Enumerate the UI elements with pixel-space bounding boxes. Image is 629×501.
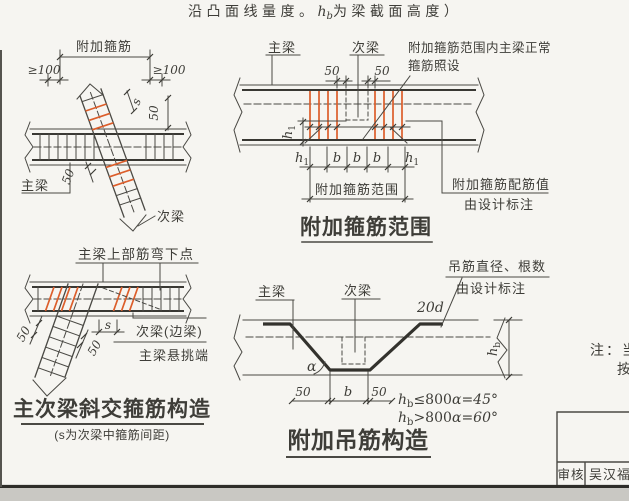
main-beam-linework: [234, 78, 484, 152]
secondary-beam-label: 次梁: [352, 40, 380, 55]
main-beam-label: 主梁: [258, 284, 286, 299]
dim-b-1: b: [333, 151, 341, 166]
leader-lines: [22, 163, 155, 226]
footer-strip: [0, 488, 629, 501]
hanger-note-line2: 由设计标注: [456, 281, 526, 296]
scanned-drawing-page: 沿凸面线量度。hb为梁截面高度） 附加箍筋 ≥100 ≥10: [0, 0, 629, 501]
main-beam-label: 主梁: [21, 178, 49, 193]
dim-h1-side: h1: [281, 125, 298, 139]
scan-edge-artifact: [0, 50, 2, 487]
side-note: 注：当 按: [590, 342, 629, 377]
review-label: 审核: [557, 467, 584, 482]
dim-s: s: [129, 96, 144, 107]
secondary-beam-linework: [77, 84, 146, 231]
side-note-line1: 注：当: [590, 342, 629, 358]
hanger-note-line1: 吊筋直径、根数: [448, 259, 546, 274]
dim-h1-bottom-right: h1: [405, 151, 419, 168]
dim-50-right: 50: [374, 64, 390, 78]
bent-bar-hidden: [103, 288, 162, 310]
secondary-beam-hidden-outline: [342, 337, 365, 364]
leader-lines: [266, 55, 548, 193]
additional-stirrup-label: 附加箍筋: [76, 39, 132, 54]
angle-rule-1: hb≤800α=45°: [398, 392, 498, 410]
diagram-stirrup-range: 主梁 次梁 附加箍筋范围内主梁正常 箍筋照设 50 50 h1 h1 b b b…: [234, 40, 551, 242]
dim-h1-bottom-left: h1: [295, 151, 309, 168]
dim-ge100-right: ≥100: [153, 63, 186, 77]
header-note: 沿凸面线量度。hb为梁截面高度）: [188, 3, 462, 22]
dim-b-2: b: [353, 151, 361, 166]
dim-50-side: 50: [147, 105, 161, 121]
angle-rule-2: hb>800α=60°: [398, 410, 498, 428]
review-value: 吴汉福: [589, 467, 629, 482]
diagram-title: 主次梁斜交箍筋构造: [13, 397, 211, 421]
break-symbols: [77, 84, 146, 231]
note-normal-stirrups-line2: 箍筋照设: [408, 58, 460, 73]
break-symbol: [33, 378, 66, 396]
main-beam-linework: [25, 275, 191, 323]
diagram-additional-stirrups: 附加箍筋 ≥100 ≥100 s 50 50 主梁 次梁: [21, 39, 191, 231]
title-block: 审核 吴汉福: [557, 412, 629, 486]
cantilever-label: 主梁悬挑端: [139, 348, 209, 363]
dim-20d: 20d: [416, 300, 444, 316]
diagram-subtitle: (s为次梁中箍筋间距): [54, 427, 170, 442]
bend-point-label: 主梁上部筋弯下点: [78, 246, 194, 262]
dim-50-a: 50: [14, 324, 34, 345]
diagram-hanger-bars: 吊筋直径、根数 由设计标注 主梁 次梁 20d α 50 b 50 hb hb≤…: [234, 259, 549, 457]
dim-b-3: b: [373, 151, 381, 166]
secondary-beam-label: 次梁: [157, 209, 185, 224]
dim-50-b: 50: [85, 338, 105, 359]
diagram-title: 附加箍筋范围: [300, 215, 432, 239]
additional-stirrups-orange: [310, 91, 402, 139]
dim-50-cross: 50: [59, 167, 78, 186]
hanger-bar: [263, 324, 443, 370]
angle-alpha-label: α: [307, 359, 317, 375]
dim-s: s: [105, 318, 111, 332]
side-note-line2: 按: [617, 361, 629, 377]
edge-beam-label: 次梁(边梁): [136, 324, 203, 339]
dim-50-right: 50: [371, 385, 387, 399]
note-config-line1: 附加箍筋配筋值: [452, 177, 550, 192]
secondary-beam-label: 次梁: [344, 283, 372, 298]
dim-50-left: 50: [324, 64, 340, 78]
dim-hb-side: hb: [486, 342, 503, 356]
dim-50-left: 50: [295, 385, 311, 399]
range-dim-label: 附加箍筋范围: [315, 182, 399, 197]
diagram-skew-stirrups: 主梁上部筋弯下点 50 50 s 次梁(边梁) 主梁悬挑端 主次梁斜交箍筋构造 …: [13, 246, 211, 442]
main-beam-label: 主梁: [268, 40, 296, 55]
secondary-beam-hidden-outline: [346, 91, 368, 120]
note-config-line2: 由设计标注: [464, 197, 534, 212]
diagram-title: 附加吊筋构造: [288, 427, 430, 453]
dim-b: b: [344, 385, 352, 400]
dim-ge100-left: ≥100: [28, 63, 61, 77]
drawing-canvas: 沿凸面线量度。hb为梁截面高度） 附加箍筋 ≥100 ≥10: [0, 0, 629, 501]
note-normal-stirrups-line1: 附加箍筋范围内主梁正常: [408, 40, 551, 55]
